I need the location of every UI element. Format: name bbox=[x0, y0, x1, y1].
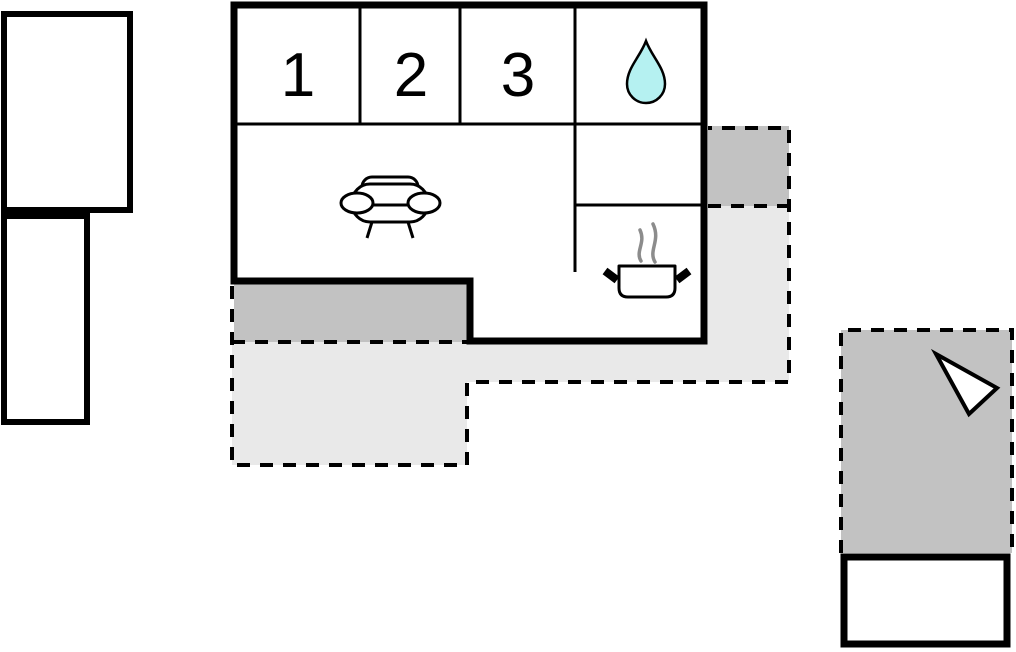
outbuilding-right bbox=[844, 557, 1007, 644]
sofa-armrest-right bbox=[408, 193, 440, 213]
covered-terrace-detached bbox=[841, 330, 1012, 553]
outbuilding-left-upper bbox=[4, 14, 130, 210]
sofa-armrest-left bbox=[341, 193, 373, 213]
room-label-2: 2 bbox=[394, 41, 428, 110]
room-label-1: 1 bbox=[281, 41, 315, 110]
floor-plan: 1 2 3 bbox=[0, 0, 1016, 652]
floor-plan-canvas: 1 2 3 bbox=[0, 0, 1016, 652]
pot-body bbox=[619, 266, 675, 297]
covered-terrace-left bbox=[234, 281, 467, 342]
room-label-3: 3 bbox=[501, 41, 535, 110]
outbuilding-left-lower bbox=[4, 216, 87, 422]
covered-terrace-right bbox=[708, 126, 789, 206]
open-terrace-right bbox=[708, 206, 789, 382]
open-terrace-left bbox=[232, 342, 467, 465]
